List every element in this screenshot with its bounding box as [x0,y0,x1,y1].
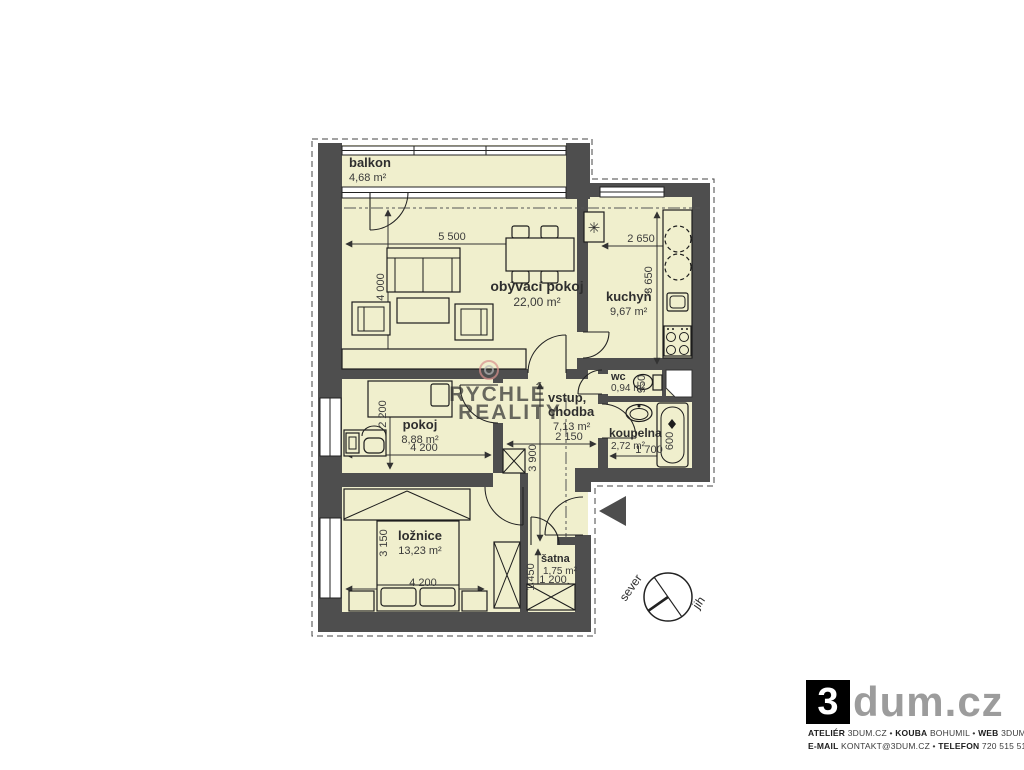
living-room-window [342,187,566,198]
dim-satna-h: 1 450 [525,563,537,591]
atelier-label: ATELIÉR [808,728,845,738]
pokoj-window [320,398,341,456]
wall-segment [318,612,591,632]
kitchen-counter [663,210,692,358]
dim-loznice-h: 3 150 [378,529,390,557]
room-label-pokoj: pokoj [403,417,438,432]
web-label: WEB [978,728,998,738]
room-area-balkon: 4,68 m² [349,172,387,184]
wall-segment [493,423,503,473]
room-label-wc: wc [610,371,626,383]
dim-chodba-h: 3 900 [527,444,539,472]
logo-text: dum.cz [853,680,1004,724]
armchair-left [352,302,390,335]
room-area-kuchyn: 9,67 m² [610,306,648,318]
wall-segment [577,358,588,369]
wall-segment [598,438,608,468]
dim-obyvaci-w: 5 500 [438,231,466,243]
wall-segment [588,468,710,482]
separator: • [972,728,975,738]
loznice-window [320,518,341,598]
coffee-table [397,298,449,323]
nightstand-left [349,591,374,611]
boiler-icon: ✳ [588,220,601,237]
telefon-value: 720 515 510 [982,741,1024,751]
telefon-label: TELEFON [938,741,979,751]
balcony-railing [342,146,566,155]
wall-segment [692,197,710,482]
entrance-arrow-icon [599,496,626,526]
wall-segment [557,537,575,545]
room-label-satna: šatna [541,553,571,565]
boiler-niche: ✳ [584,212,604,242]
room-area-obyvaci: 22,00 m² [513,295,560,309]
dim-kuchyn-w: 2 650 [627,233,655,245]
nightstand-right [462,591,487,611]
dim-wc: 950 [636,375,648,393]
separator: • [933,741,936,751]
kouba-value: BOHUMIL [930,728,970,738]
compass-north-label: sever [617,572,645,604]
web-value: 3DUM.CZ [1001,728,1024,738]
built-in-closet [494,542,520,608]
wall-segment [575,468,588,482]
kitchen-sink [667,293,688,311]
dim-koupelna-w: 1 700 [635,444,663,456]
sideboard [342,349,526,369]
contact-line-2: E-MAIL KONTAKT@3DUM.CZ • TELEFON 720 515… [808,740,1018,753]
sofa [387,248,460,292]
wall-segment [520,473,528,487]
dim-obyvaci-h: 4 000 [375,273,387,301]
wall-segment [318,143,342,199]
wall-segment [588,358,710,370]
wall-segment [575,482,591,492]
hallway-closet [503,449,525,473]
separator: • [889,728,892,738]
wall-segment [598,394,608,404]
floor-plan-canvas: ✳ [0,0,1024,770]
email-value: KONTAKT@3DUM.CZ [841,741,930,751]
compass-icon: sever jih [617,572,708,631]
floor-plan-drawing: ✳ [0,0,1024,770]
stove [664,326,691,356]
room-label-obyvaci: obývací pokoj [490,278,583,294]
room-label-loznice: ložnice [398,528,442,543]
wardrobe [344,489,470,520]
room-area-loznice: 13,23 m² [398,545,442,557]
dim-kuchyn-h: 3 650 [643,266,655,294]
armchair-right [455,304,493,340]
wall-segment [342,369,528,379]
logo-number-box: 3 [806,680,850,724]
dim-loznice-w: 4 200 [409,577,437,589]
kouba-label: KOUBA [895,728,927,738]
dim-satna-w: 1 200 [539,574,567,586]
wall-segment [342,473,493,487]
contact-line-1: ATELIÉR 3DUM.CZ • KOUBA BOHUMIL • WEB 3D… [808,727,1018,740]
email-label: E-MAIL [808,741,838,751]
wall-segment [566,143,590,199]
dim-pokoj-h: 2 200 [377,400,389,428]
atelier-value: 3DUM.CZ [848,728,887,738]
brand-logo: 3 dum.cz [806,680,1004,724]
room-label-koupelna: koupelna [609,426,662,440]
dim-pokoj-w: 4 200 [410,442,438,454]
dim-bathtub: 600 [664,432,676,450]
dim-chodba-w: 2 150 [555,431,583,443]
watermark-word-2: REALITY [458,401,562,424]
kitchen-window [600,187,664,197]
room-label-balkon: balkon [349,155,391,170]
contact-info: ATELIÉR 3DUM.CZ • KOUBA BOHUMIL • WEB 3D… [808,727,1018,752]
